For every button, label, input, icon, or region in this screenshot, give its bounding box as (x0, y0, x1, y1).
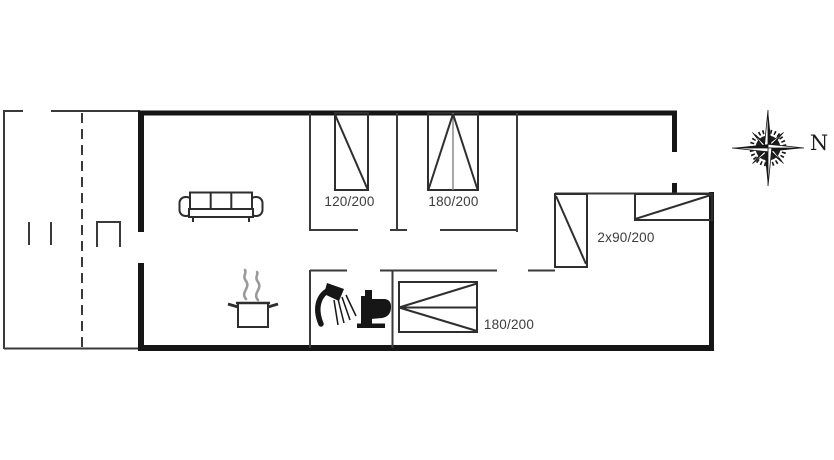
bed-size-label-120-200: 120/200 (321, 195, 378, 209)
carport-bracket-mark (97, 222, 120, 247)
compass-north-label: N (806, 131, 832, 155)
bed-size-label-180-200-bottom: 180/200 (480, 318, 538, 332)
floor-plan: 120/200 180/200 180/200 2x90/200 N (0, 0, 834, 460)
bed-size-label-2x90-200: 2x90/200 (592, 231, 660, 245)
shower-icon (318, 283, 356, 325)
bed-symbol-180x200-bottom (399, 282, 477, 332)
compass-rose-icon (732, 110, 804, 186)
floor-plan-drawing (0, 0, 834, 460)
bed-symbol-90x200-vertical (555, 194, 587, 267)
carport-outline (4, 110, 141, 349)
compass-cardinal-points (732, 110, 804, 186)
cooking-pot-icon (228, 270, 278, 327)
toilet-icon (357, 290, 391, 328)
sofa-icon (180, 193, 263, 223)
steam-icon (244, 270, 259, 300)
bed-size-label-180-200-top: 180/200 (425, 195, 482, 209)
bed-symbol-90x200-horizontal (635, 194, 712, 220)
bed-symbol-120x200 (335, 113, 368, 190)
bed-symbol-180x200-top (428, 113, 478, 190)
